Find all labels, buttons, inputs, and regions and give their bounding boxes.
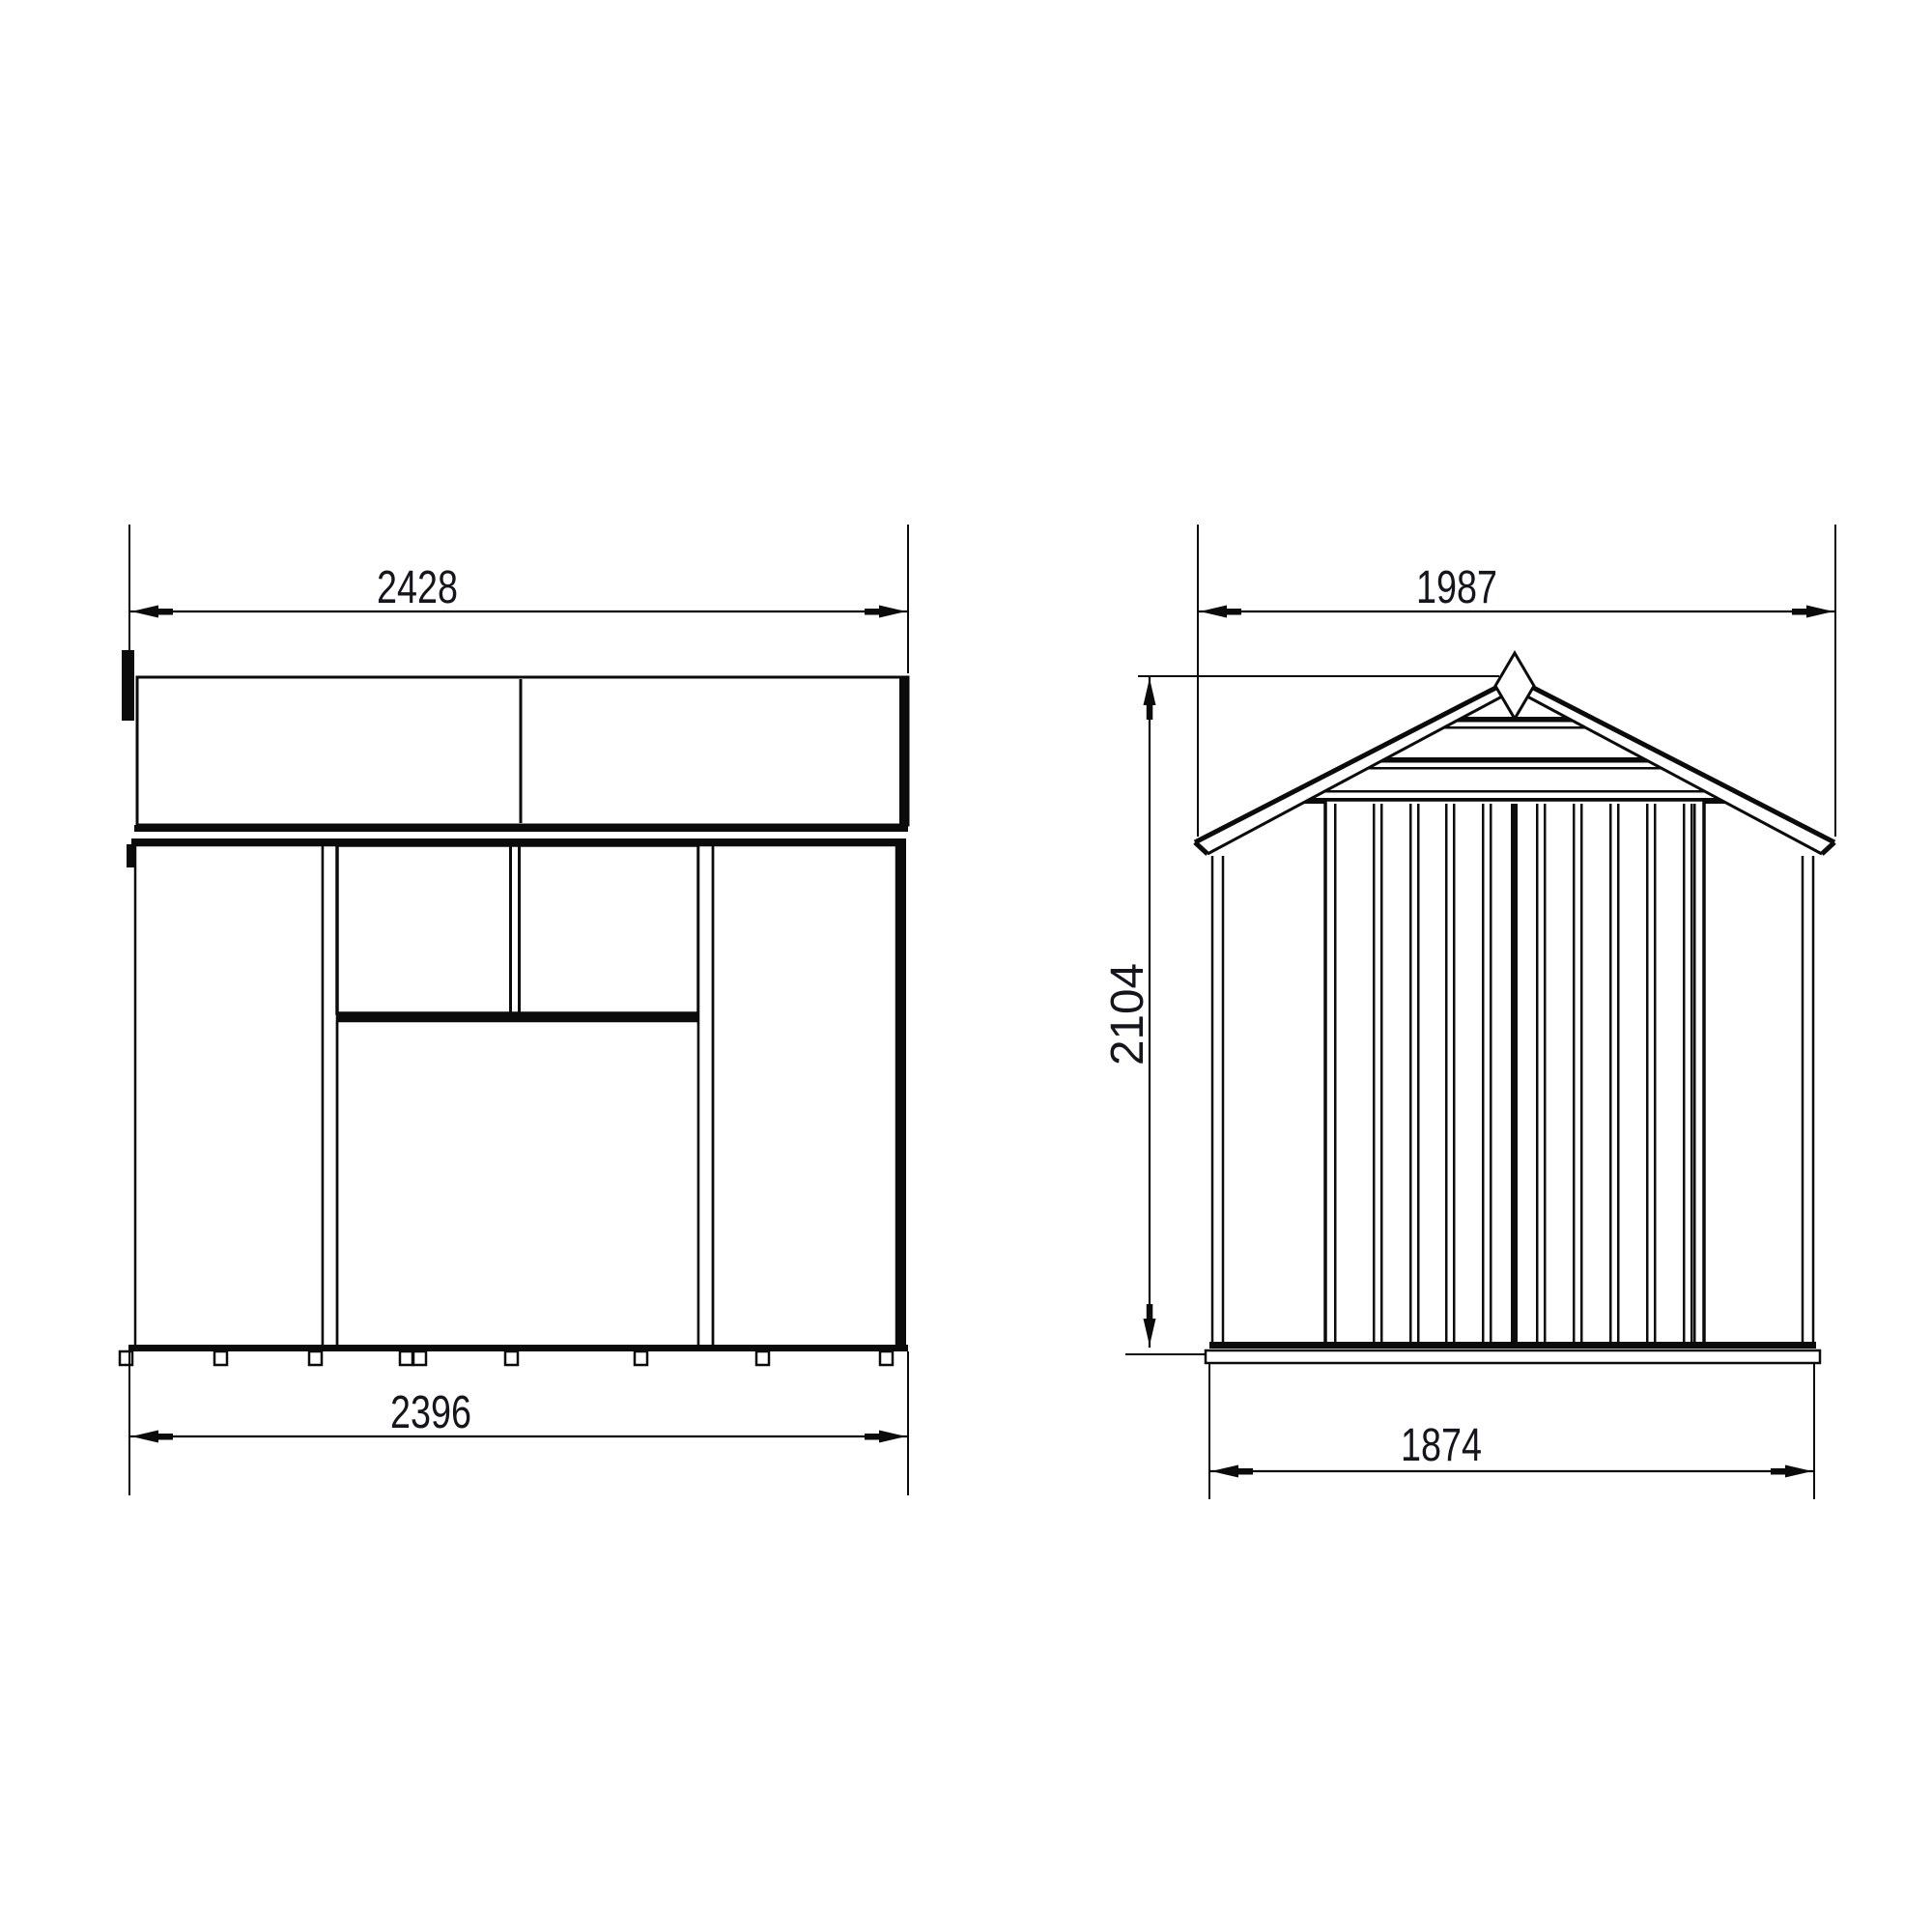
roof-right-edge: [899, 677, 908, 825]
arrow-right-icon: [1792, 606, 1833, 618]
wall-right-corner: [896, 838, 906, 1348]
side-window: [337, 845, 698, 1021]
arrow-right-icon: [865, 1431, 906, 1443]
side-top-dimension: 2428: [129, 525, 908, 676]
bearer-foot: [635, 1351, 647, 1365]
gable-band: [1204, 757, 1826, 763]
dimension-value-front-height: 2104: [1102, 963, 1153, 1065]
fascia-line: [134, 825, 908, 832]
side-roof: [122, 650, 908, 832]
floor-bearers: [120, 1351, 893, 1365]
technical-drawing: 2428: [0, 0, 1932, 1932]
arrow-left-icon: [131, 606, 173, 618]
bearer-foot: [756, 1351, 769, 1365]
front-bottom-dimension: 1874: [1209, 1364, 1814, 1499]
gable-band: [1204, 767, 1826, 770]
arrow-right-icon: [865, 606, 906, 618]
bearer-foot: [400, 1351, 412, 1365]
arrow-left-icon: [1200, 606, 1241, 618]
left-cladding-panel: [135, 845, 323, 1348]
side-elevation-view: 2428: [120, 525, 908, 1495]
arrow-up-icon: [1144, 678, 1156, 720]
floor-base-strip: [1206, 1350, 1820, 1363]
dimension-value-side-width: 2428: [377, 562, 458, 613]
double-doors: [1325, 800, 1704, 1345]
bearer-foot: [214, 1351, 227, 1365]
window-left-stud: [323, 845, 337, 1348]
eave-cap-left: [1195, 842, 1207, 854]
bargeboard-end: [122, 650, 134, 721]
front-elevation-view: 1987 2104: [1102, 525, 1835, 1499]
door-meeting-stile: [1511, 804, 1518, 1345]
front-left-cladding: [1212, 792, 1325, 1345]
gable-band: [1204, 726, 1826, 729]
window-mullion: [509, 845, 512, 1013]
bearer-foot: [413, 1351, 426, 1365]
dimension-value-side-base: 2396: [390, 1387, 471, 1438]
bearer-foot: [505, 1351, 518, 1365]
arrow-left-icon: [131, 1431, 173, 1443]
right-cladding-panel: [713, 845, 896, 1348]
side-wall: [127, 838, 908, 1351]
window-mullion: [518, 845, 521, 1013]
window-right-stud: [698, 845, 713, 1348]
side-bottom-dimension: 2396: [129, 1351, 908, 1495]
arrow-right-icon: [1771, 1465, 1812, 1478]
front-right-cladding: [1704, 792, 1813, 1345]
wall-bottom-rail: [1209, 1342, 1816, 1349]
eave-cap-right: [1822, 842, 1834, 854]
under-window-boards: [337, 1021, 698, 1348]
bearer-foot: [880, 1351, 893, 1365]
bearer-foot: [309, 1351, 322, 1365]
dimension-value-front-width: 1987: [1416, 562, 1497, 613]
dimension-value-front-base: 1874: [1401, 1420, 1482, 1471]
arrow-left-icon: [1211, 1465, 1253, 1478]
bearer-foot: [120, 1351, 132, 1365]
arrow-down-icon: [1144, 1304, 1156, 1346]
roof-panel: [137, 677, 908, 825]
drawing-canvas: 2428: [0, 0, 1932, 1932]
